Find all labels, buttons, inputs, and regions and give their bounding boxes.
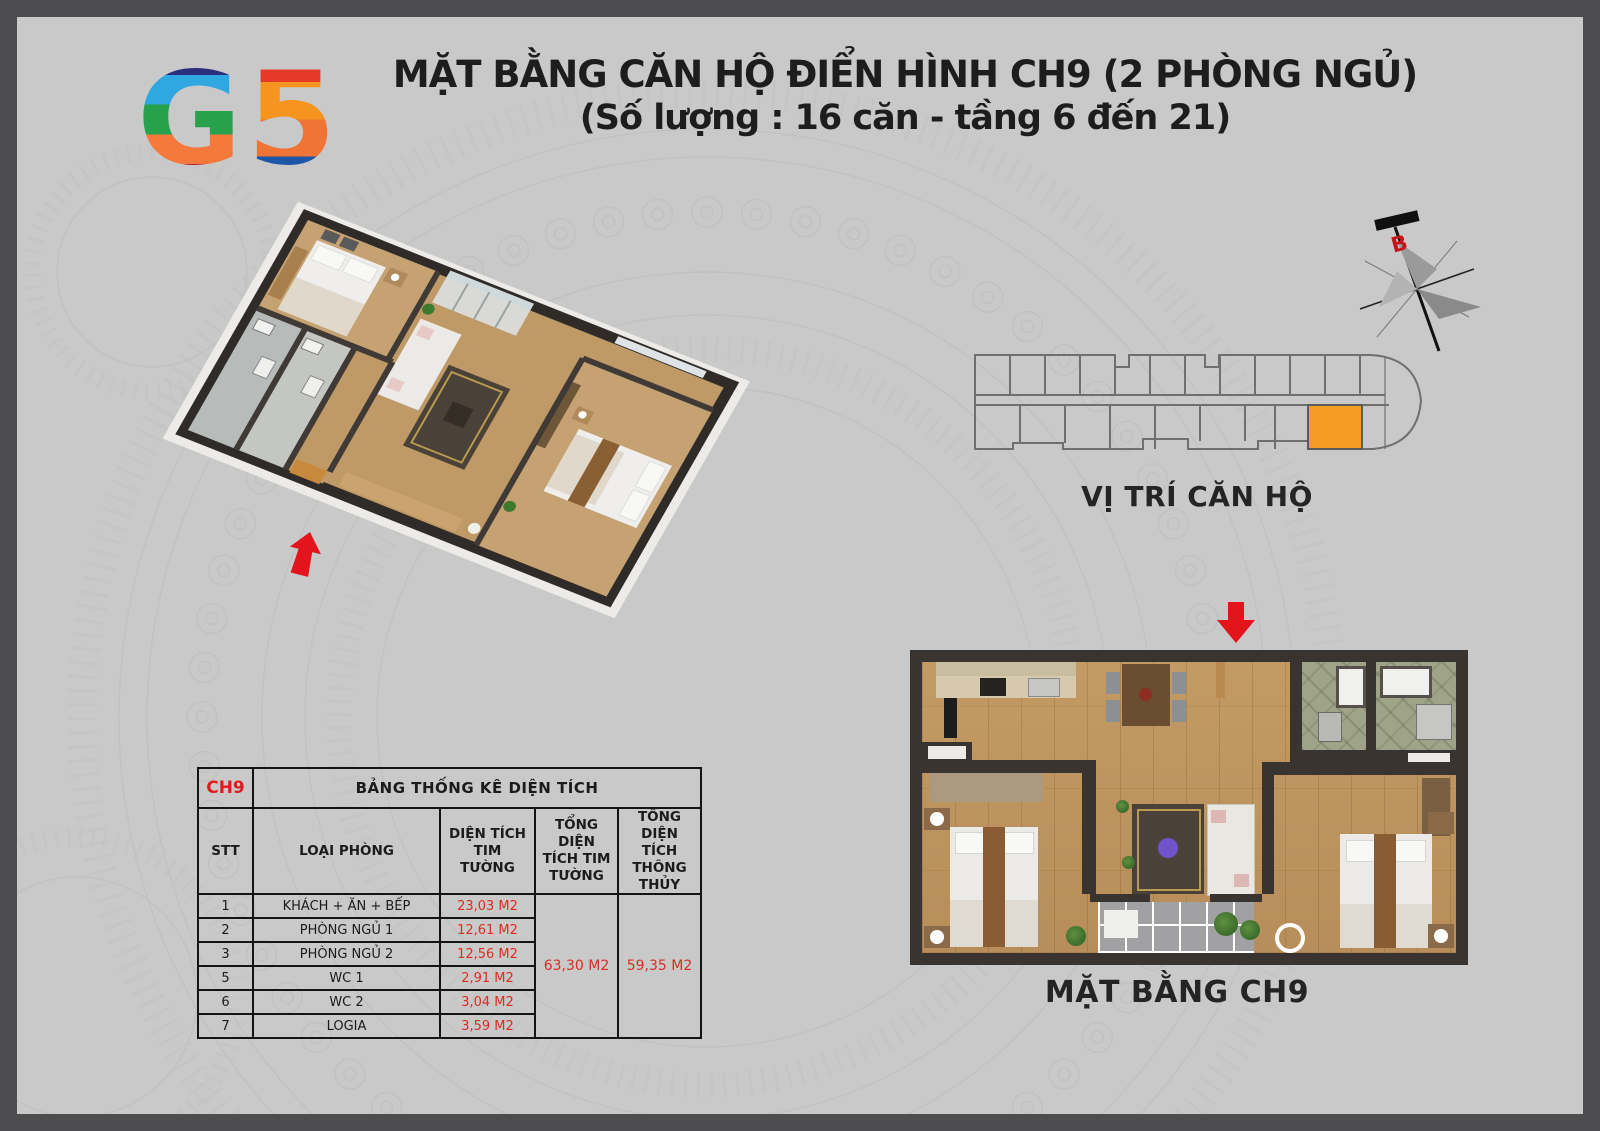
wheel-decor [1275, 923, 1305, 953]
sofa-pillow [1211, 810, 1226, 823]
col-header-area: DIỆN TÍCH TIM TƯỜNG [440, 808, 535, 894]
dining-chair [1106, 700, 1120, 722]
row-stt: 5 [198, 966, 253, 990]
title-line-1: MẶT BẰNG CĂN HỘ ĐIỂN HÌNH CH9 (2 PHÒNG N… [347, 53, 1463, 97]
row-area: 12,61 M2 [440, 918, 535, 942]
row-room: LOGIA [253, 1014, 440, 1038]
row-room: PHÒNG NGỦ 2 [253, 942, 440, 966]
row-area: 2,91 M2 [440, 966, 535, 990]
wc1-toilet [1318, 712, 1342, 742]
table-row: 1 KHÁCH + ĂN + BẾP 23,03 M2 63,30 M2 59,… [198, 894, 701, 918]
bedroom1-bed-runner [983, 827, 1005, 947]
floor-plan-2d [910, 650, 1468, 965]
bedroom2-nightstand [1428, 812, 1454, 834]
kitchen-sink [1028, 678, 1060, 697]
bedroom2-bed-runner [1374, 834, 1396, 948]
page: G 5 MẶT BẰNG CĂN HỘ ĐIỂN HÌNH CH9 (2 PHÒ… [0, 0, 1600, 1131]
col-header-room: LOẠI PHÒNG [253, 808, 440, 894]
bedroom2-left-wall [1262, 762, 1274, 894]
dining-chair [1172, 700, 1186, 722]
col-header-total-tim-tuong: TỔNG DIỆN TÍCH TIM TƯỜNG [535, 808, 618, 894]
row-stt: 2 [198, 918, 253, 942]
kitchen-upper-cabinet [936, 662, 1076, 676]
row-stt: 6 [198, 990, 253, 1014]
bathroom-divider-wall [1366, 662, 1376, 750]
row-stt: 7 [198, 1014, 253, 1038]
bedroom1-wardrobe [930, 773, 1043, 802]
row-stt: 1 [198, 894, 253, 918]
floor-plan-3d-render [150, 172, 830, 642]
balcony-plant [1240, 920, 1260, 940]
row-room: PHÒNG NGỦ 1 [253, 918, 440, 942]
row-area: 3,04 M2 [440, 990, 535, 1014]
bedroom1-right-wall [1082, 760, 1096, 894]
wall-niche-left [928, 746, 966, 759]
col-header-stt: STT [198, 808, 253, 894]
plant [1116, 800, 1129, 813]
building-location-diagram [965, 337, 1435, 469]
row-area: 23,03 M2 [440, 894, 535, 918]
rug-flowers [1158, 838, 1178, 858]
dining-centerpiece [1139, 688, 1152, 701]
balcony-top-wall [1090, 894, 1150, 902]
fridge [944, 698, 957, 738]
unit-code: CH9 [198, 768, 253, 808]
dining-chair [1172, 672, 1186, 694]
bedroom1-lamp [930, 812, 944, 826]
row-stt: 3 [198, 942, 253, 966]
bedroom2-lamp [1434, 929, 1448, 943]
wc2-shower [1416, 704, 1452, 740]
entrance-arrow-3d [284, 528, 326, 578]
wc1-sink [1336, 666, 1366, 708]
balcony-table [1104, 910, 1138, 938]
total-thong-thuy: 59,35 M2 [618, 894, 701, 1038]
bedroom2-top-wall [1262, 762, 1456, 775]
balcony-top-wall [1210, 894, 1262, 902]
plant [1066, 926, 1086, 946]
logo-letter-g: G [137, 45, 242, 185]
logo-letter-5: 5 [247, 45, 336, 185]
title-line-2: (Số lượng : 16 căn - tầng 6 đến 21) [347, 97, 1463, 141]
dining-chair [1106, 672, 1120, 694]
g5-logo: G 5 [129, 45, 359, 185]
row-area: 3,59 M2 [440, 1014, 535, 1038]
location-caption: VỊ TRÍ CĂN HỘ [1017, 480, 1377, 513]
col-header-total-thong-thuy: TỔNG DIỆN TÍCH THÔNG THỦY [618, 808, 701, 894]
row-area: 12,56 M2 [440, 942, 535, 966]
wc2-bathtub [1380, 666, 1432, 698]
bedroom1-lamp [930, 930, 944, 944]
floor-plan-caption: MẶT BẰNG CH9 [997, 975, 1357, 1010]
row-room: KHÁCH + ĂN + BẾP [253, 894, 440, 918]
bathroom-left-wall [1290, 662, 1302, 762]
sofa-pillow [1234, 874, 1249, 887]
row-room: WC 2 [253, 990, 440, 1014]
table-title: BẢNG THỐNG KÊ DIỆN TÍCH [253, 768, 701, 808]
total-tim-tuong: 63,30 M2 [535, 894, 618, 1038]
plant [1122, 856, 1135, 869]
area-statistics-table: CH9 BẢNG THỐNG KÊ DIỆN TÍCH STT LOẠI PHÒ… [197, 767, 702, 1039]
entry-door [1216, 662, 1225, 698]
row-room: WC 1 [253, 966, 440, 990]
page-title: MẶT BẰNG CĂN HỘ ĐIỂN HÌNH CH9 (2 PHÒNG N… [347, 53, 1463, 141]
compass-north-label: B [1388, 230, 1410, 257]
canvas: G 5 MẶT BẰNG CĂN HỘ ĐIỂN HÌNH CH9 (2 PHÒ… [17, 17, 1583, 1114]
highlighted-unit-ch9 [1308, 405, 1362, 449]
kitchen-stove [980, 678, 1006, 696]
unit-pointer-arrow [1215, 602, 1257, 644]
balcony-plant [1214, 912, 1238, 936]
